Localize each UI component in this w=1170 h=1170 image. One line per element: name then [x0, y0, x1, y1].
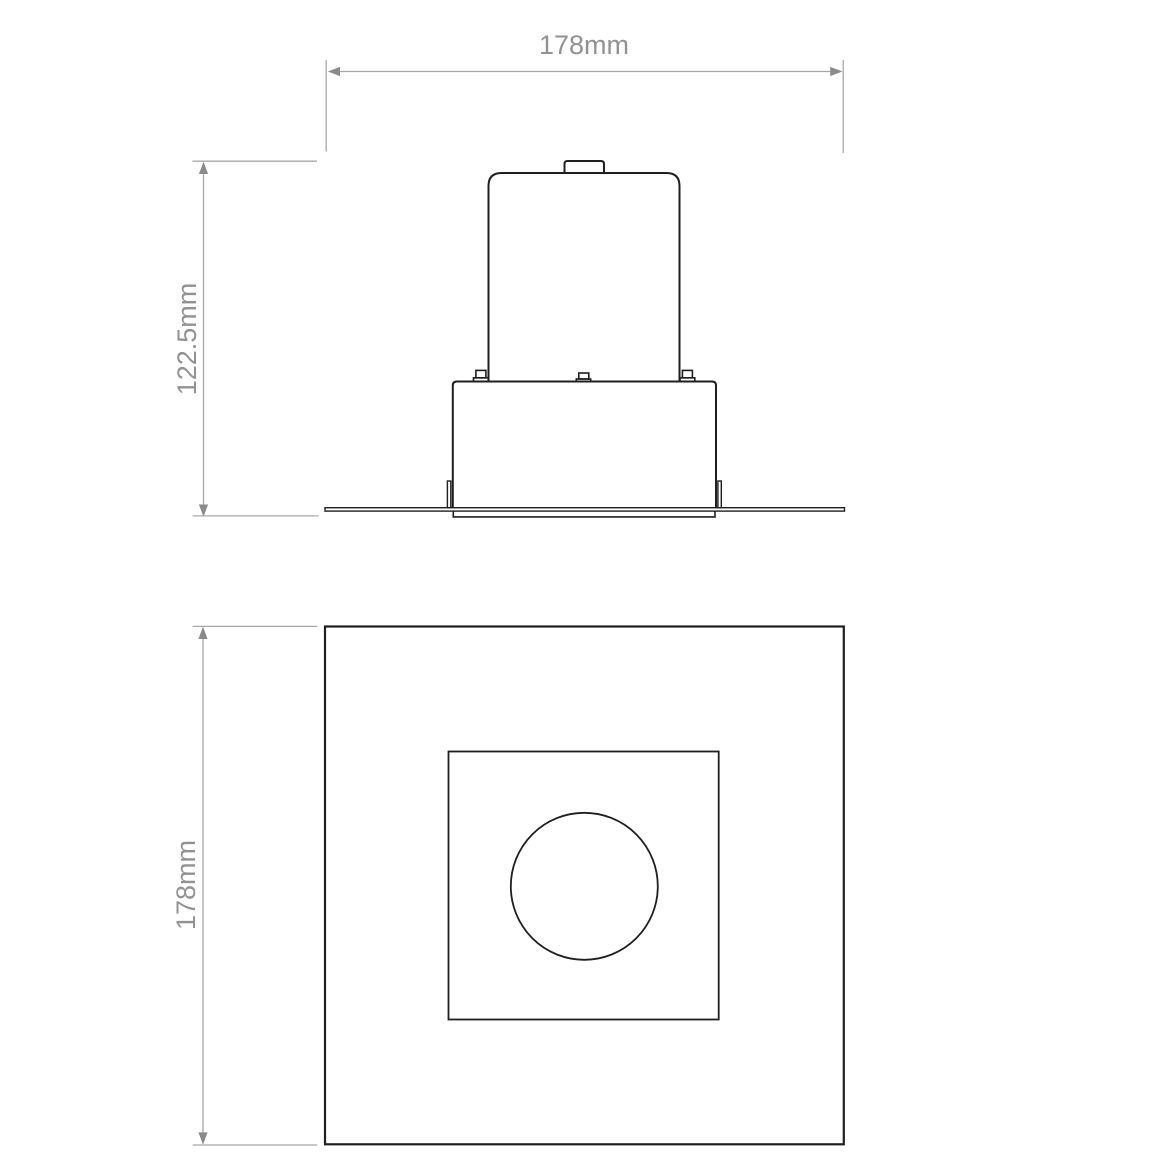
svg-text:122.5mm: 122.5mm [172, 283, 202, 396]
svg-text:178mm: 178mm [539, 30, 629, 60]
svg-text:178mm: 178mm [171, 840, 201, 930]
